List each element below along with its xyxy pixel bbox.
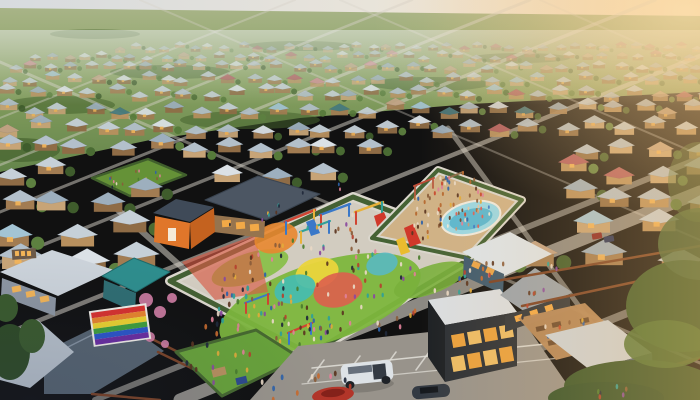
aerial-neighborhood-photo — [0, 0, 700, 400]
scene-svg — [0, 0, 700, 400]
